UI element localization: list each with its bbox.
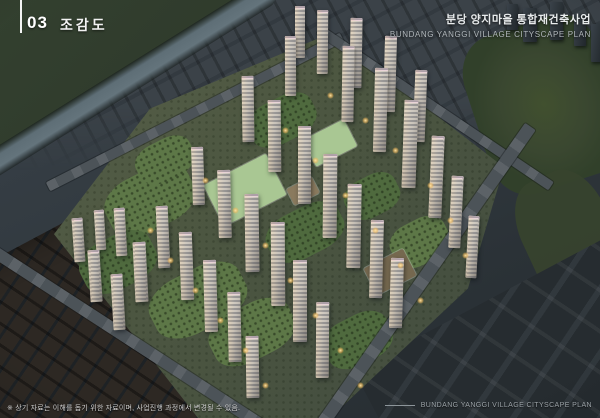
page-title: 조감도 bbox=[60, 15, 108, 35]
tower-roof bbox=[271, 222, 285, 225]
tower-roof bbox=[244, 194, 258, 197]
tower-roof bbox=[267, 100, 280, 103]
tower-roof bbox=[293, 260, 307, 263]
tower-roof bbox=[191, 147, 203, 150]
tower-roof bbox=[227, 292, 240, 295]
apartment-tower bbox=[341, 46, 354, 122]
apartment-tower bbox=[267, 100, 281, 172]
tower-roof bbox=[316, 302, 329, 305]
tower-roof bbox=[431, 136, 444, 140]
apartment-tower bbox=[191, 147, 205, 205]
footer-caption: BUNDANG YANGGI VILLAGE CITYSCAPE PLAN bbox=[385, 402, 592, 409]
warm-light bbox=[427, 182, 434, 189]
warm-light bbox=[232, 207, 239, 214]
tower-roof bbox=[468, 216, 479, 220]
project-title-english: BUNDANG YANGGI VILLAGE CITYSCAPE PLAN bbox=[390, 30, 591, 39]
apartment-tower bbox=[241, 76, 254, 142]
warm-light bbox=[312, 157, 319, 164]
tower-roof bbox=[241, 76, 253, 79]
apartment-tower bbox=[323, 154, 338, 238]
tower-roof bbox=[390, 258, 403, 261]
warm-light bbox=[262, 382, 269, 389]
apartment-tower bbox=[244, 194, 259, 272]
apartment-tower bbox=[227, 292, 241, 362]
apartment-tower bbox=[132, 242, 148, 303]
tower-roof bbox=[245, 336, 258, 339]
warm-light bbox=[357, 382, 364, 389]
warm-light bbox=[147, 227, 154, 234]
tower-roof bbox=[132, 242, 145, 246]
tower-roof bbox=[375, 68, 388, 71]
apartment-tower bbox=[217, 170, 232, 238]
project-title-korean: 분당 양지마을 통합재건축사업 bbox=[390, 11, 591, 27]
tower-roof bbox=[284, 36, 295, 39]
tower-roof bbox=[370, 220, 383, 223]
tower-roof bbox=[323, 154, 337, 157]
tower-roof bbox=[317, 10, 328, 13]
apartment-tower bbox=[245, 336, 259, 398]
tower-roof bbox=[295, 6, 305, 9]
tower-roof bbox=[110, 274, 122, 278]
disclaimer-note: ※ 상기 자료는 이해를 돕기 위한 자료이며, 사업진행 과정에서 변경될 수… bbox=[7, 403, 240, 413]
header-accent-bar bbox=[20, 0, 22, 33]
tower-roof bbox=[87, 250, 99, 254]
warm-light bbox=[167, 257, 174, 264]
tower-roof bbox=[452, 176, 464, 180]
tower-roof bbox=[217, 170, 230, 173]
apartment-tower bbox=[271, 222, 286, 306]
warm-light bbox=[417, 297, 424, 304]
tower-roof bbox=[298, 126, 311, 129]
tower-roof bbox=[404, 100, 418, 103]
apartment-tower bbox=[293, 260, 307, 342]
tower-roof bbox=[178, 232, 191, 235]
warm-light bbox=[312, 312, 319, 319]
apartment-tower bbox=[316, 10, 327, 74]
tower-roof bbox=[415, 70, 427, 73]
apartment-tower bbox=[295, 6, 305, 58]
apartment-tower bbox=[297, 126, 310, 204]
warm-light bbox=[392, 147, 399, 154]
warm-light bbox=[202, 177, 209, 184]
warm-light bbox=[447, 217, 454, 224]
slide: 03 조감도 분당 양지마을 통합재건축사업 BUNDANG YANGGI VI… bbox=[0, 0, 600, 418]
apartment-tower bbox=[372, 68, 387, 152]
warm-light bbox=[342, 192, 349, 199]
tower-roof bbox=[94, 210, 104, 214]
tower-roof bbox=[202, 260, 215, 263]
tower-roof bbox=[113, 208, 124, 212]
tower-roof bbox=[343, 46, 355, 49]
tower-roof bbox=[348, 184, 362, 187]
apartment-tower bbox=[202, 260, 217, 332]
tower-roof bbox=[71, 218, 82, 222]
warm-light bbox=[337, 347, 344, 354]
warm-light bbox=[242, 347, 249, 354]
warm-light bbox=[372, 227, 379, 234]
footer-caption-text: BUNDANG YANGGI VILLAGE CITYSCAPE PLAN bbox=[421, 402, 592, 409]
tower-roof bbox=[351, 18, 363, 21]
warm-light bbox=[262, 242, 269, 249]
project-title-block: 분당 양지마을 통합재건축사업 BUNDANG YANGGI VILLAGE C… bbox=[390, 11, 591, 39]
footer-rule-line bbox=[385, 405, 415, 406]
apartment-tower bbox=[113, 208, 127, 257]
warm-light bbox=[397, 262, 404, 269]
warm-light bbox=[327, 92, 334, 99]
warm-light bbox=[282, 127, 289, 134]
warm-light bbox=[462, 252, 469, 259]
apartment-tower bbox=[284, 36, 295, 96]
tower-roof bbox=[156, 206, 168, 210]
section-number: 03 bbox=[27, 13, 48, 33]
warm-light bbox=[287, 277, 294, 284]
warm-light bbox=[362, 117, 369, 124]
warm-light bbox=[192, 287, 199, 294]
warm-light bbox=[217, 317, 224, 324]
dark-tower bbox=[591, 24, 600, 62]
